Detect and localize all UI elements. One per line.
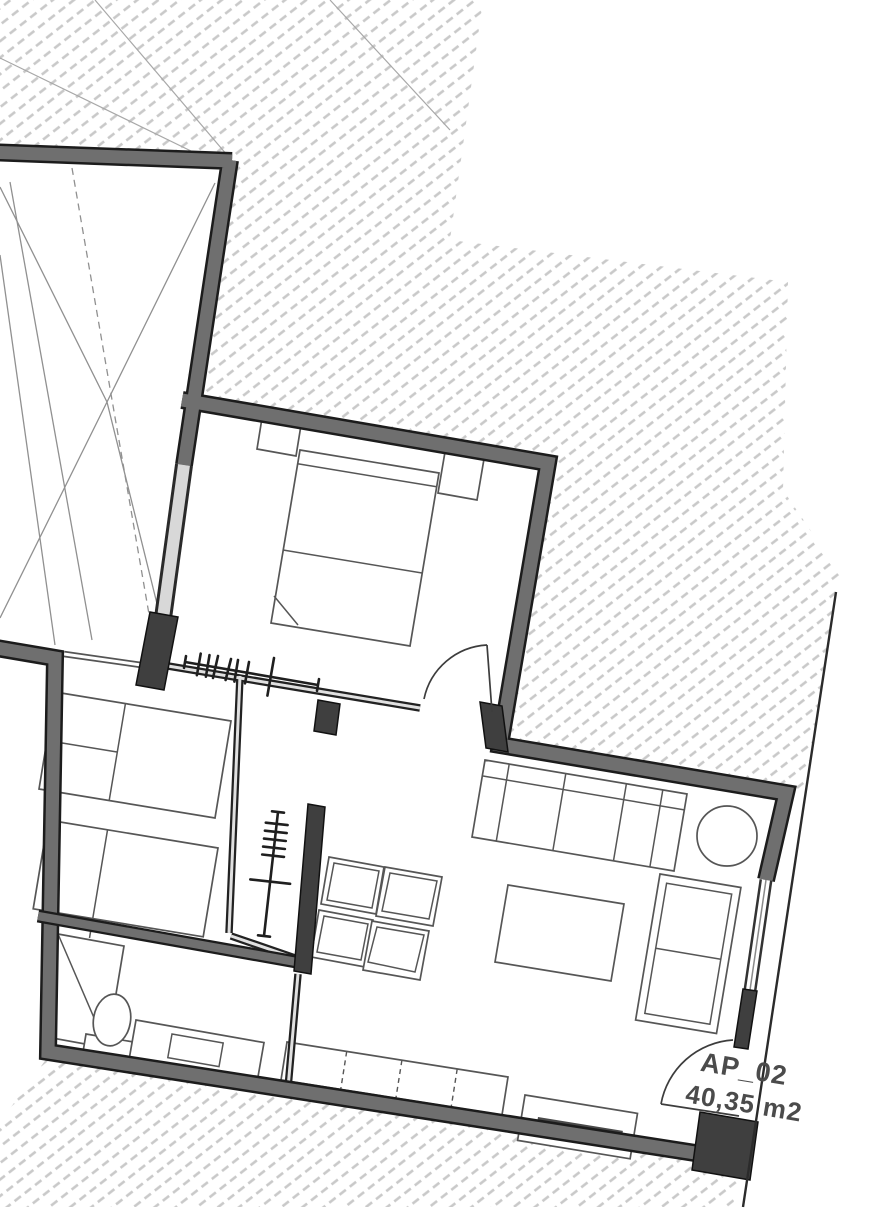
round-table-icon [697, 806, 757, 866]
floor-plan-page: AP_02 40,35 m2 [0, 0, 878, 1209]
floor-plan-svg: AP_02 40,35 m2 [0, 0, 878, 1209]
double-bed-icon [271, 450, 439, 646]
